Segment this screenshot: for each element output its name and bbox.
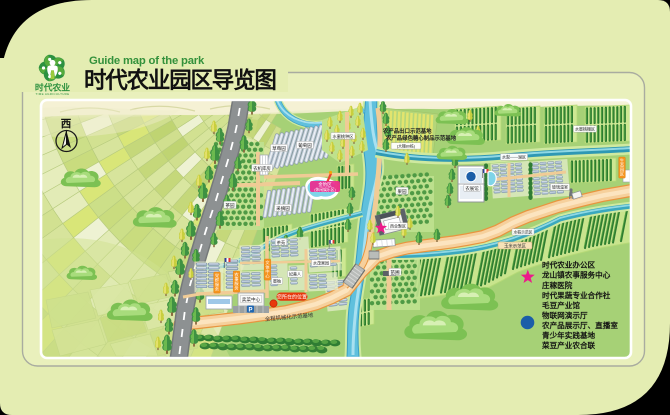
svg-text:农机库房: 农机库房 (253, 165, 271, 172)
svg-text:(休闲娱乐区): (休闲娱乐区) (314, 187, 336, 192)
svg-text:Guide map of the park: Guide map of the park (89, 55, 205, 67)
svg-text:时代农业园区导览图: 时代农业园区导览图 (84, 67, 276, 93)
svg-text:龙山镇农事服务中心: 龙山镇农事服务中心 (541, 270, 611, 280)
svg-text:卖菜中心: 卖菜中心 (242, 296, 261, 303)
svg-text:蜜柚: 蜜柚 (273, 278, 281, 284)
svg-text:水稻示范区: 水稻示范区 (514, 230, 533, 235)
svg-text:时代果蔬专业合作社: 时代果蔬专业合作社 (542, 290, 611, 300)
svg-text:农产品展示厅、直播室: 农产品展示厅、直播室 (541, 320, 618, 330)
svg-text:妃美人: 妃美人 (289, 271, 301, 277)
svg-text:水蜜桃棚区: 水蜜桃棚区 (575, 126, 595, 132)
svg-text:葡萄园: 葡萄园 (298, 142, 312, 149)
svg-text:玉米示范区: 玉米示范区 (504, 242, 527, 249)
svg-text:农展馆: 农展馆 (465, 185, 479, 192)
svg-text:物联网演示厅: 物联网演示厅 (542, 310, 588, 320)
svg-text:西业聚区: 西业聚区 (390, 223, 406, 229)
svg-text:茶苑: 茶苑 (277, 239, 286, 246)
svg-text:菜豆产业农合联: 菜豆产业农合联 (541, 340, 596, 350)
svg-text:茶园: 茶园 (225, 202, 235, 209)
svg-text:时代农业办公区: 时代农业办公区 (542, 260, 596, 270)
svg-text:青少年实践基地: 青少年实践基地 (542, 330, 596, 340)
svg-text:农产品绿色糖心制品示范基地: 农产品绿色糖心制品示范基地 (386, 134, 457, 142)
svg-text:水梨——湖区: 水梨——湖区 (502, 154, 526, 160)
svg-text:草莓园: 草莓园 (272, 145, 286, 152)
svg-text:您所在的位置: 您所在的位置 (277, 294, 307, 301)
svg-text:TIME AGRICULTURE: TIME AGRICULTURE (36, 92, 70, 96)
svg-text:西: 西 (61, 118, 72, 130)
svg-text:毛豆产业馆: 毛豆产业馆 (542, 300, 580, 310)
svg-text:采摘园: 采摘园 (276, 205, 290, 212)
svg-text:水茂果园: 水茂果园 (313, 260, 329, 266)
svg-text:(大棚80栋): (大棚80栋) (397, 144, 416, 149)
svg-text:水蜜桃种区: 水蜜桃种区 (333, 133, 354, 140)
svg-text:P: P (248, 307, 252, 313)
svg-text:区: 区 (620, 172, 624, 177)
svg-text:庄稼医院: 庄稼医院 (542, 280, 573, 290)
svg-text:玻璃温室: 玻璃温室 (552, 184, 568, 190)
svg-text:农产品出口示范基地: 农产品出口示范基地 (383, 127, 432, 135)
